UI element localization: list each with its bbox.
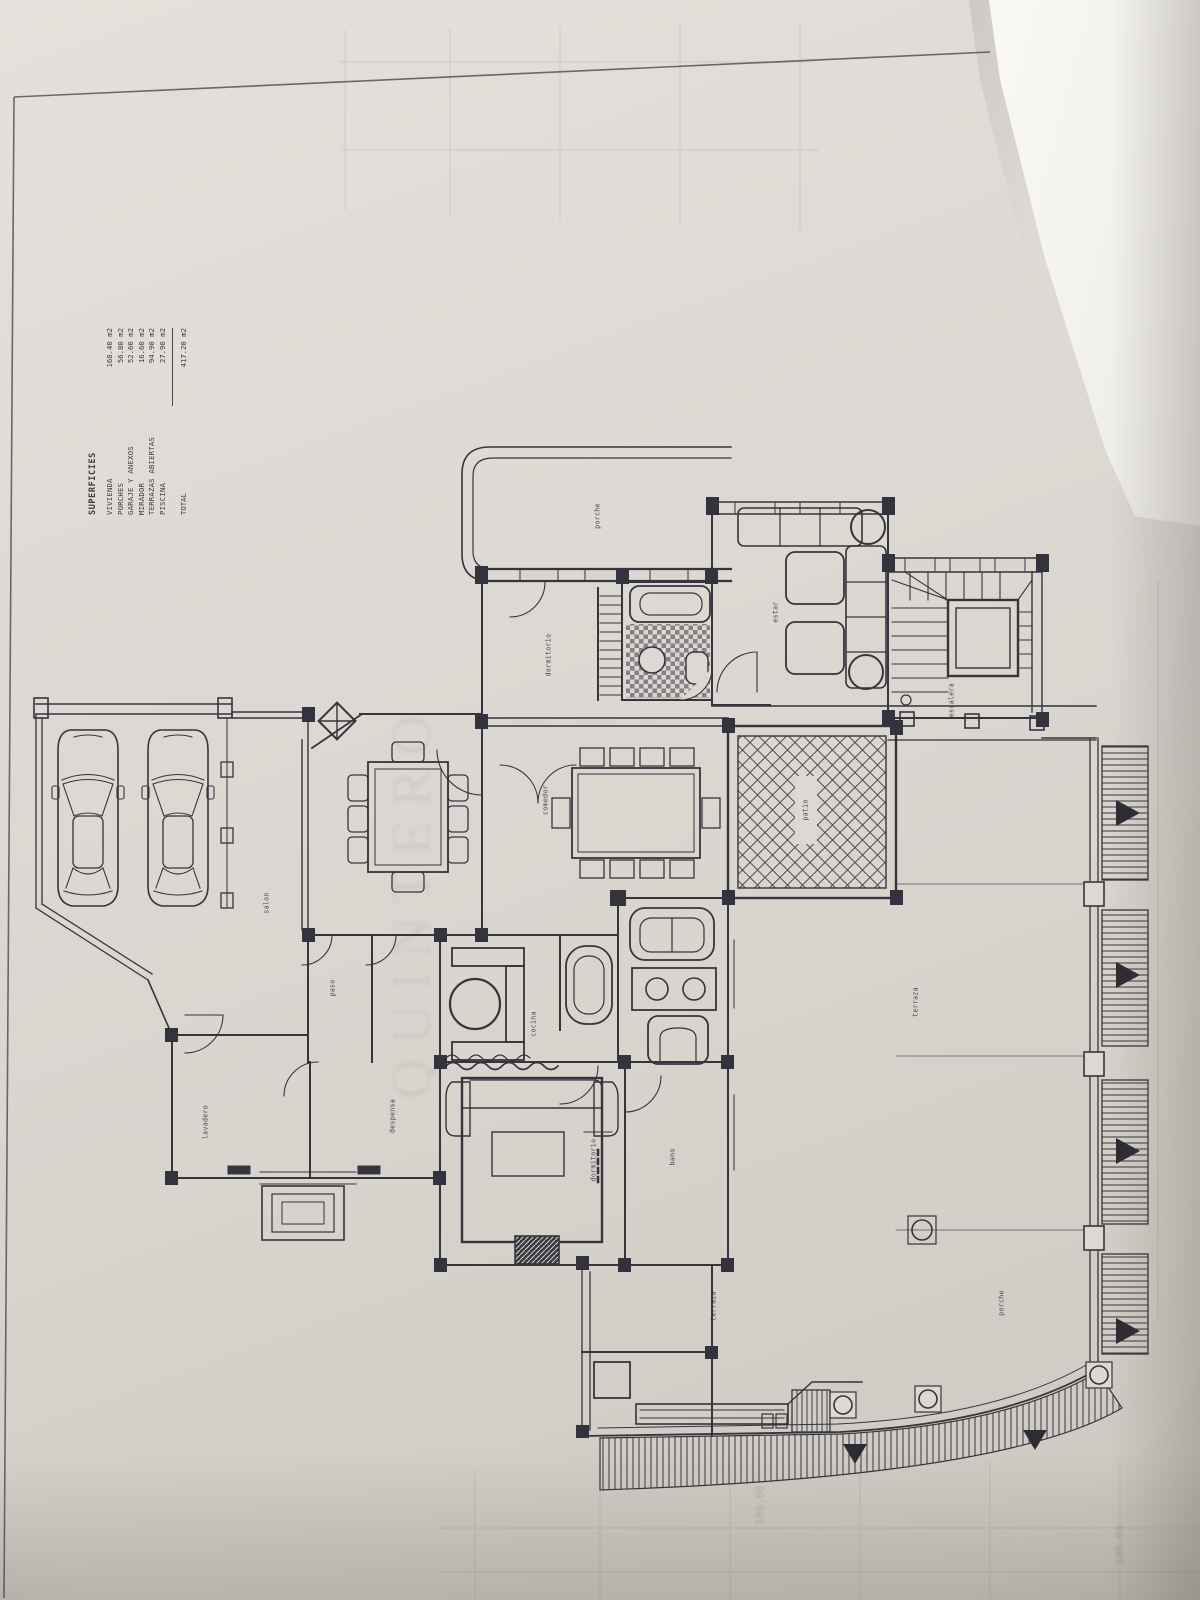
photo-vignette bbox=[0, 0, 1200, 1600]
photo-surface: QUINTERO bbox=[0, 0, 1200, 1600]
